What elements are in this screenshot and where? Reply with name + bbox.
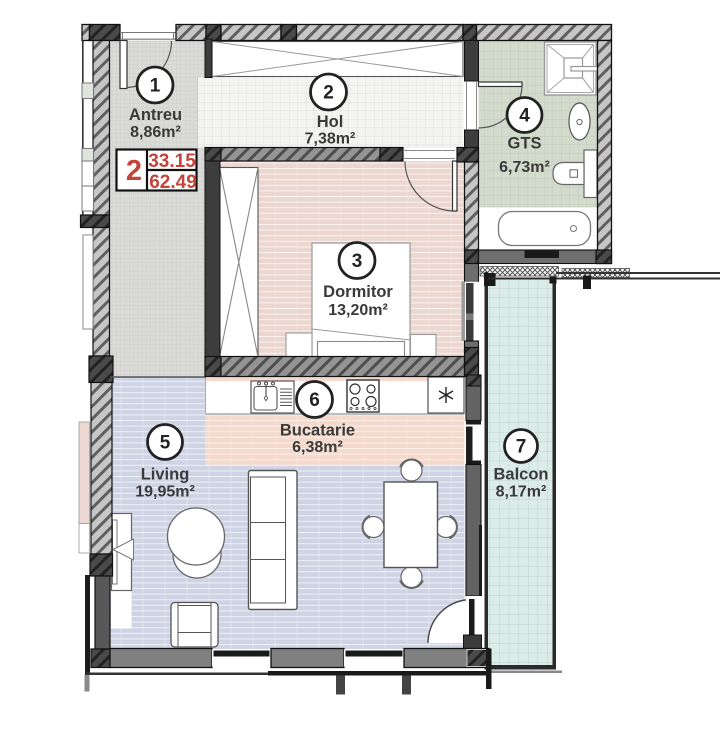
svg-text:13,20m²: 13,20m²	[328, 302, 388, 319]
svg-text:33.15: 33.15	[148, 151, 196, 172]
svg-text:6,38m²: 6,38m²	[292, 439, 343, 456]
svg-text:Hol: Hol	[317, 113, 344, 131]
svg-text:7,38m²: 7,38m²	[305, 131, 356, 148]
svg-text:6: 6	[309, 390, 320, 411]
svg-text:8,86m²: 8,86m²	[130, 124, 181, 141]
svg-text:3: 3	[352, 251, 363, 272]
svg-text:19,95m²: 19,95m²	[135, 484, 195, 501]
svg-text:Living: Living	[141, 466, 190, 484]
svg-text:Bucatarie: Bucatarie	[280, 422, 355, 440]
svg-text:Balcon: Balcon	[493, 466, 548, 484]
svg-text:Antreu: Antreu	[129, 106, 182, 124]
svg-text:2: 2	[323, 83, 334, 104]
svg-text:7: 7	[516, 437, 527, 458]
svg-text:2: 2	[126, 155, 142, 187]
svg-text:Dormitor: Dormitor	[323, 283, 393, 301]
svg-text:GTS: GTS	[508, 135, 542, 153]
svg-text:1: 1	[150, 76, 161, 97]
svg-text:4: 4	[519, 106, 530, 127]
svg-text:8,17m²: 8,17m²	[496, 484, 547, 501]
svg-text:6,73m²: 6,73m²	[499, 159, 550, 176]
svg-text:5: 5	[160, 433, 171, 454]
svg-text:62.49: 62.49	[149, 172, 197, 193]
